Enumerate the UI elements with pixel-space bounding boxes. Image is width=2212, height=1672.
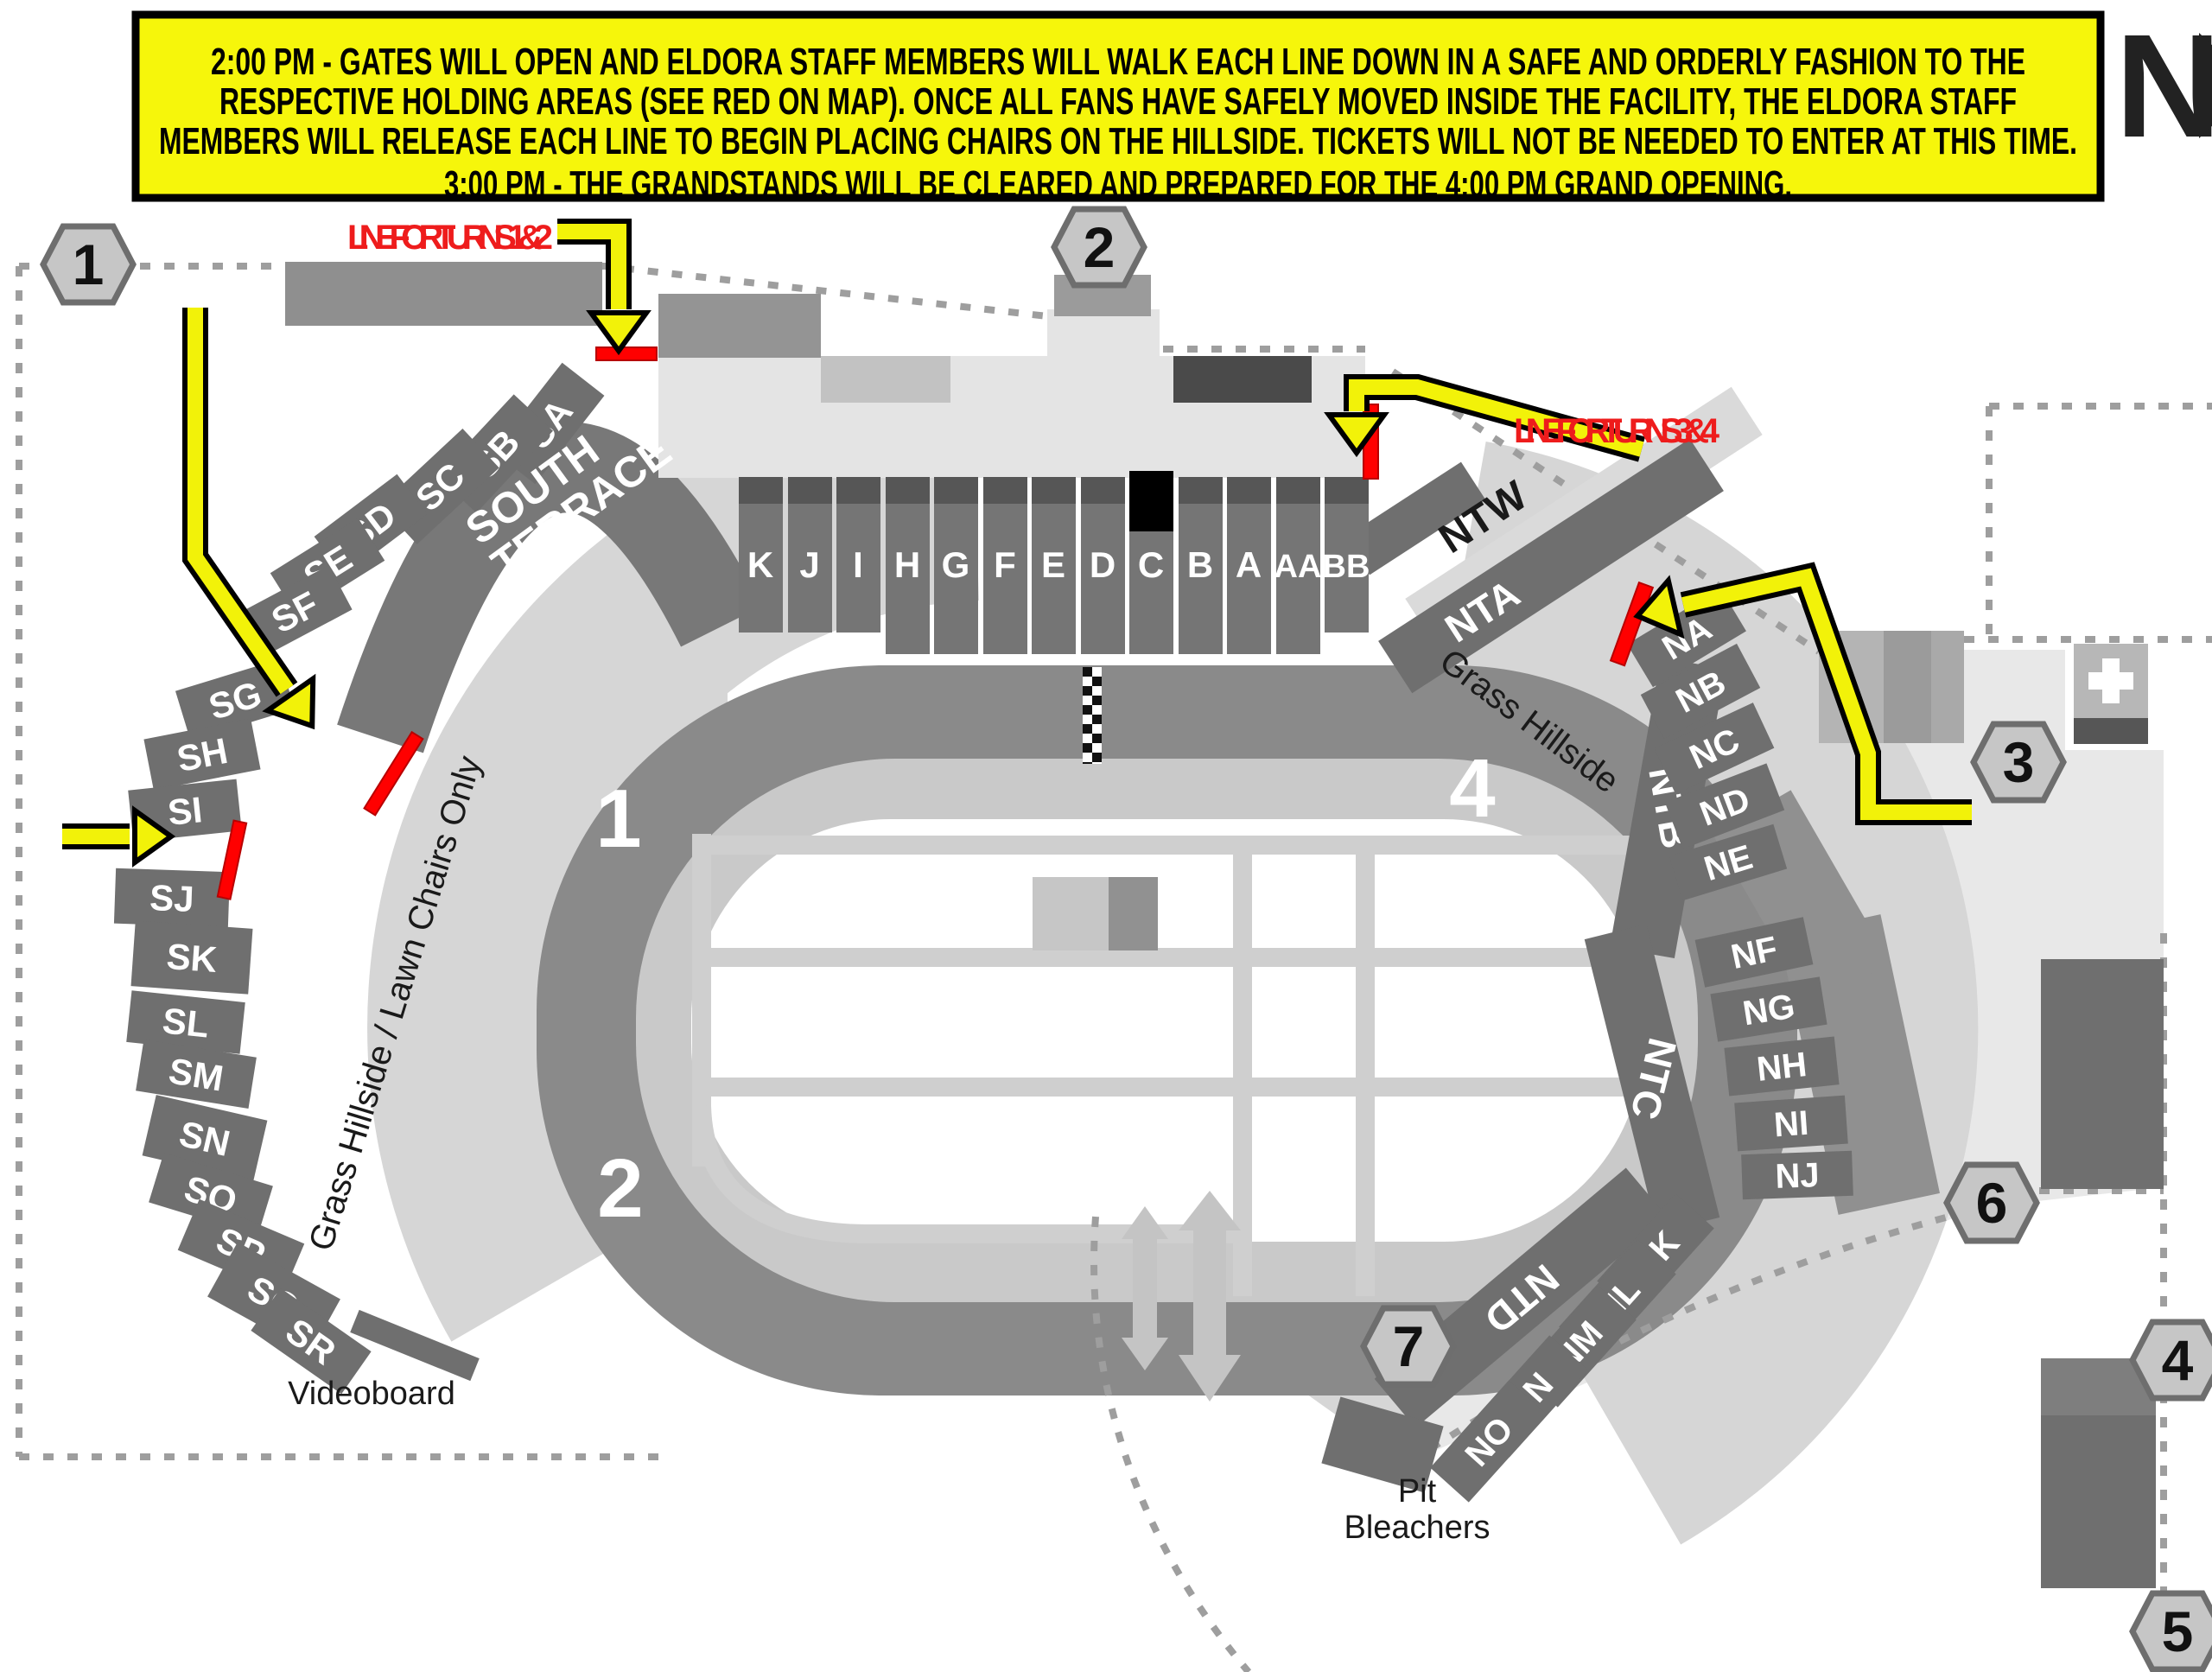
svg-text:NJ: NJ	[1775, 1156, 1821, 1196]
svg-text:SJ: SJ	[149, 877, 194, 919]
svg-text:7: 7	[1393, 1314, 1425, 1378]
section-bb-label: BB	[1323, 549, 1370, 585]
grandstand-building-left	[658, 294, 821, 358]
turn-1-label: 1	[595, 772, 641, 865]
west-building	[285, 262, 602, 326]
east-building-stripe-2	[1884, 631, 1931, 743]
schedule-banner: 2:00 PM - GATES WILL OPEN AND ELDORA STA…	[136, 15, 2101, 206]
section-d-label: D	[1090, 544, 1116, 585]
section-c-label: C	[1138, 544, 1164, 585]
svg-text:NG: NG	[1740, 988, 1797, 1033]
gate-marker-6[interactable]: 6	[1947, 1165, 2037, 1241]
section-nj[interactable]: NJ	[1741, 1151, 1853, 1199]
concourse-inner-building	[821, 356, 950, 403]
section-ni[interactable]: NI	[1734, 1096, 1848, 1152]
suites-building	[1173, 356, 1312, 403]
infield-building-light	[1033, 877, 1109, 950]
first-aid-station[interactable]	[2074, 644, 2148, 744]
svg-text:2: 2	[1084, 215, 1116, 279]
turn-3-label: 3	[1449, 1134, 1495, 1226]
section-h-label: H	[894, 544, 920, 585]
gate-marker-3[interactable]: 3	[1974, 724, 2063, 800]
holding-line-turns-1-2	[596, 347, 657, 360]
svg-text:SI: SI	[166, 789, 204, 833]
section-j-label: J	[799, 544, 819, 585]
svg-text:NI: NI	[1773, 1104, 1810, 1145]
gate-marker-2[interactable]: 2	[1054, 209, 1144, 285]
svg-text:SL: SL	[161, 1000, 211, 1045]
svg-text:6: 6	[1976, 1171, 2008, 1235]
svg-text:3: 3	[2003, 730, 2035, 794]
pit-bleachers-label-1: Pit	[1398, 1473, 1437, 1510]
start-finish-checkered-line	[1083, 667, 1102, 764]
east-building-upper	[2041, 959, 2164, 1189]
banner-line-2: RESPECTIVE HOLDING AREAS (SEE RED ON MAP…	[219, 80, 2017, 123]
gate2-walkway	[1047, 309, 1160, 358]
gate-marker-7[interactable]: 7	[1363, 1308, 1453, 1384]
gate-marker-4[interactable]: 4	[2133, 1322, 2212, 1398]
map-canvas: 1 2 4 3 NTA	[0, 0, 2212, 1672]
svg-text:NH: NH	[1755, 1046, 1808, 1089]
svg-text:SK: SK	[165, 936, 218, 980]
turn-2-label: 2	[597, 1142, 643, 1235]
section-f-label: F	[994, 544, 1016, 585]
pit-bleachers-label-2: Bleachers	[1344, 1510, 1491, 1546]
press-box-black	[1129, 471, 1173, 531]
gate-marker-5[interactable]: 5	[2133, 1593, 2212, 1669]
turn-4-label: 4	[1449, 742, 1495, 835]
banner-line-1: 2:00 PM - GATES WILL OPEN AND ELDORA STA…	[211, 41, 2025, 83]
section-i-label: I	[853, 544, 863, 585]
section-e-label: E	[1041, 544, 1065, 585]
svg-text:4: 4	[2162, 1328, 2194, 1392]
banner-line-3: MEMBERS WILL RELEASE EACH LINE TO BEGIN …	[159, 120, 2077, 162]
svg-text:N: N	[2115, 4, 2212, 168]
infield-building-dark	[1109, 877, 1158, 950]
line-turns-1-2-label: LINE FOR TURNS 1 & 2	[347, 219, 553, 257]
line-turns-3-4-label: LINE FOR TURNS 3 & 4	[1514, 412, 1720, 450]
track-infield	[691, 819, 1643, 1242]
section-b-label: B	[1187, 544, 1213, 585]
svg-text:SM: SM	[166, 1050, 226, 1098]
svg-text:1: 1	[73, 232, 105, 296]
eldora-speedway-map: 1 2 4 3 NTA	[0, 0, 2212, 1672]
section-sj[interactable]: SJ	[114, 868, 230, 928]
section-a-label: A	[1236, 544, 1262, 585]
arrowhead-turns-1-2	[591, 313, 646, 351]
south-lower-sections: SJ SK SL SM SN SO SP SQ SR	[114, 868, 372, 1395]
section-k-label: K	[747, 544, 773, 585]
banner-line-4: 3:00 PM - THE GRANDSTANDS WILL BE CLEARE…	[444, 163, 1792, 206]
svg-text:5: 5	[2162, 1599, 2194, 1663]
section-sk[interactable]: SK	[131, 920, 253, 994]
section-g-label: G	[942, 544, 970, 585]
videoboard-label: Videoboard	[288, 1376, 455, 1412]
north-arrow-icon: N	[2115, 4, 2212, 168]
section-sh[interactable]: SH	[143, 719, 260, 791]
section-aa-label: AA	[1274, 549, 1322, 585]
east-building-stripe-3	[1931, 631, 1964, 743]
gate-marker-1[interactable]: 1	[43, 226, 133, 302]
